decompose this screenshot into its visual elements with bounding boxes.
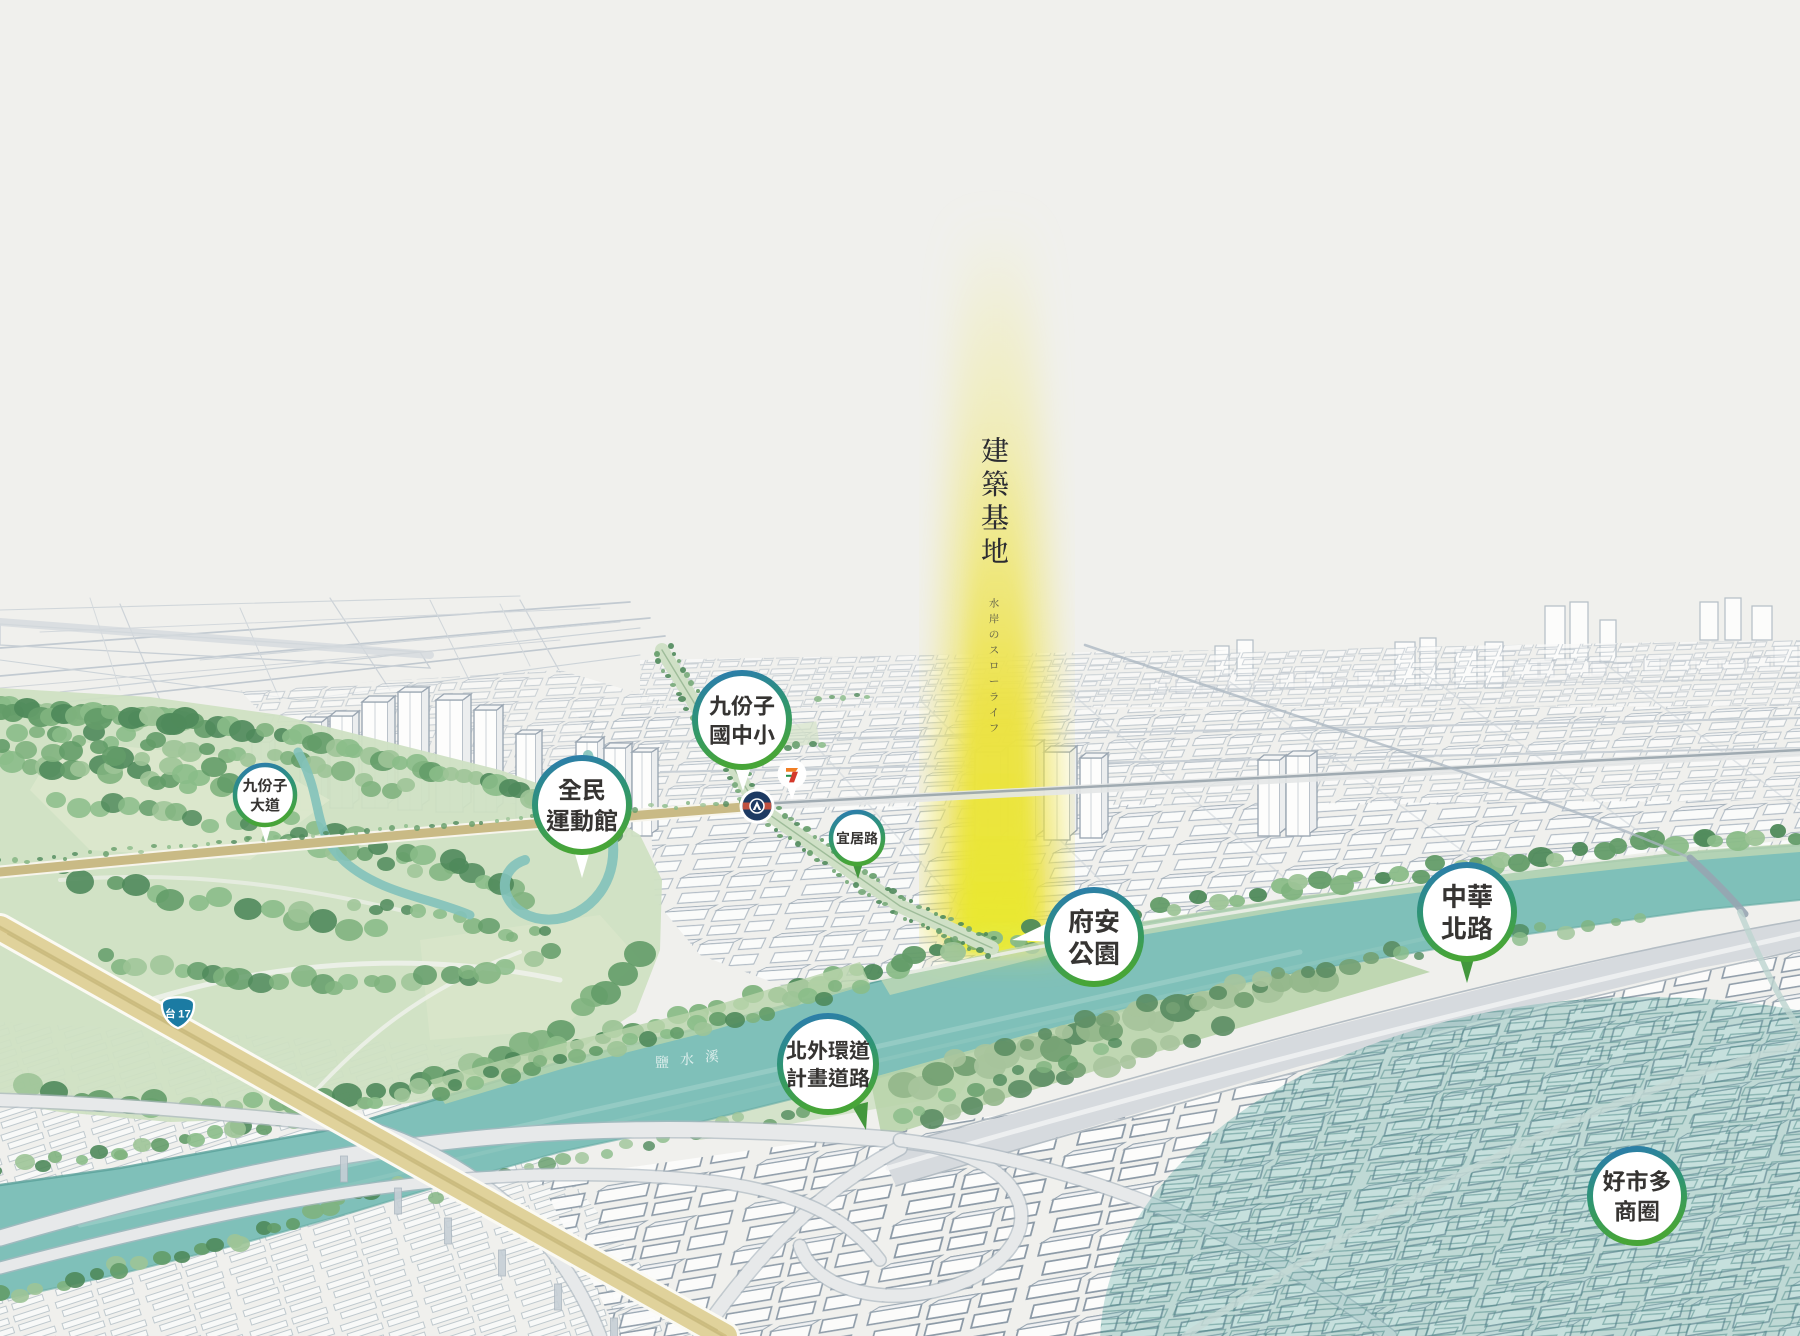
svg-text:17: 17 xyxy=(178,1008,191,1020)
